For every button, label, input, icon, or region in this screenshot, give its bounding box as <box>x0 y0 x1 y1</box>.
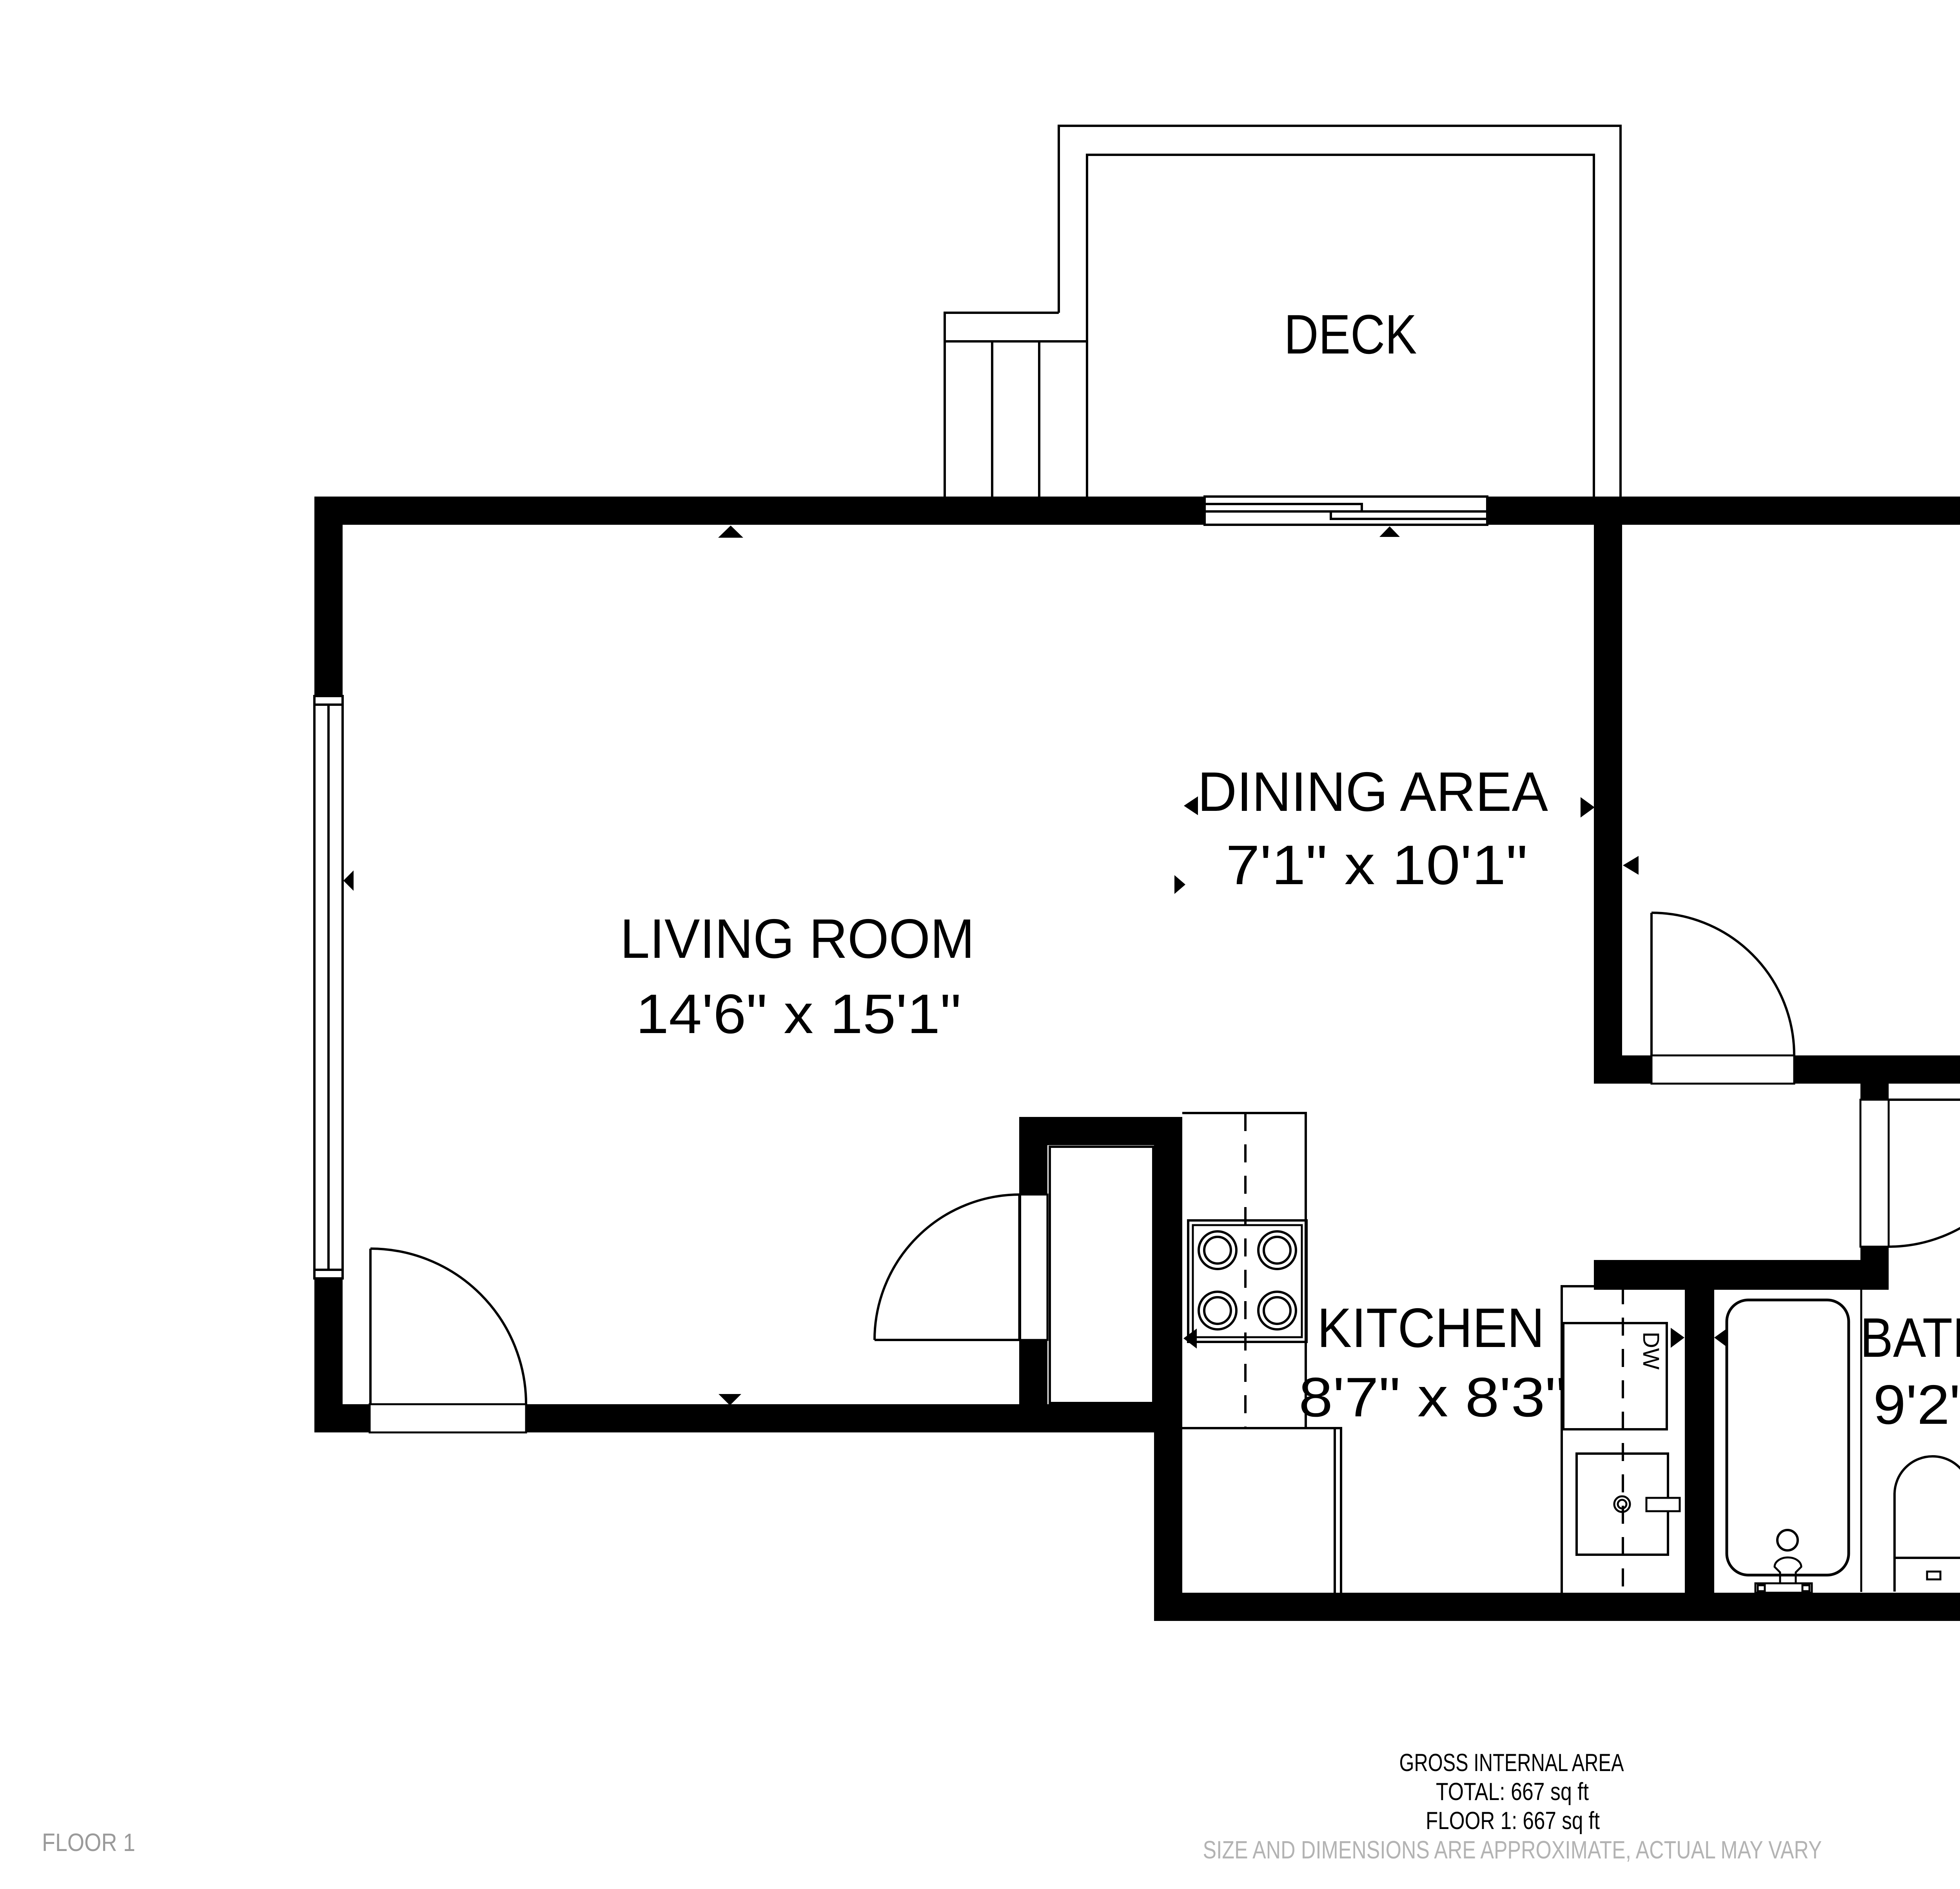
svg-text:FLOOR 1: 667 sq ft: FLOOR 1: 667 sq ft <box>1426 1807 1600 1835</box>
svg-text:GROSS INTERNAL AREA: GROSS INTERNAL AREA <box>1399 1749 1624 1777</box>
svg-text:DECK: DECK <box>1284 303 1417 366</box>
svg-text:TOTAL: 667 sq ft: TOTAL: 667 sq ft <box>1436 1778 1589 1806</box>
svg-text:14'6" x 15'1": 14'6" x 15'1" <box>636 983 961 1045</box>
svg-text:KITCHEN: KITCHEN <box>1317 1297 1544 1359</box>
svg-text:DINING AREA: DINING AREA <box>1198 761 1548 823</box>
svg-text:BATHROOM: BATHROOM <box>1860 1307 1960 1369</box>
svg-text:DW: DW <box>1638 1332 1664 1370</box>
svg-text:SIZE AND DIMENSIONS ARE APPROX: SIZE AND DIMENSIONS ARE APPROXIMATE, ACT… <box>1203 1836 1822 1864</box>
svg-text:7'1" x 10'1": 7'1" x 10'1" <box>1226 834 1528 896</box>
svg-text:9'2" x 8'9": 9'2" x 8'9" <box>1873 1374 1960 1436</box>
svg-text:LIVING ROOM: LIVING ROOM <box>620 908 975 970</box>
svg-text:8'7" x 8'3": 8'7" x 8'3" <box>1299 1366 1567 1429</box>
svg-text:FLOOR 1: FLOOR 1 <box>42 1828 135 1856</box>
